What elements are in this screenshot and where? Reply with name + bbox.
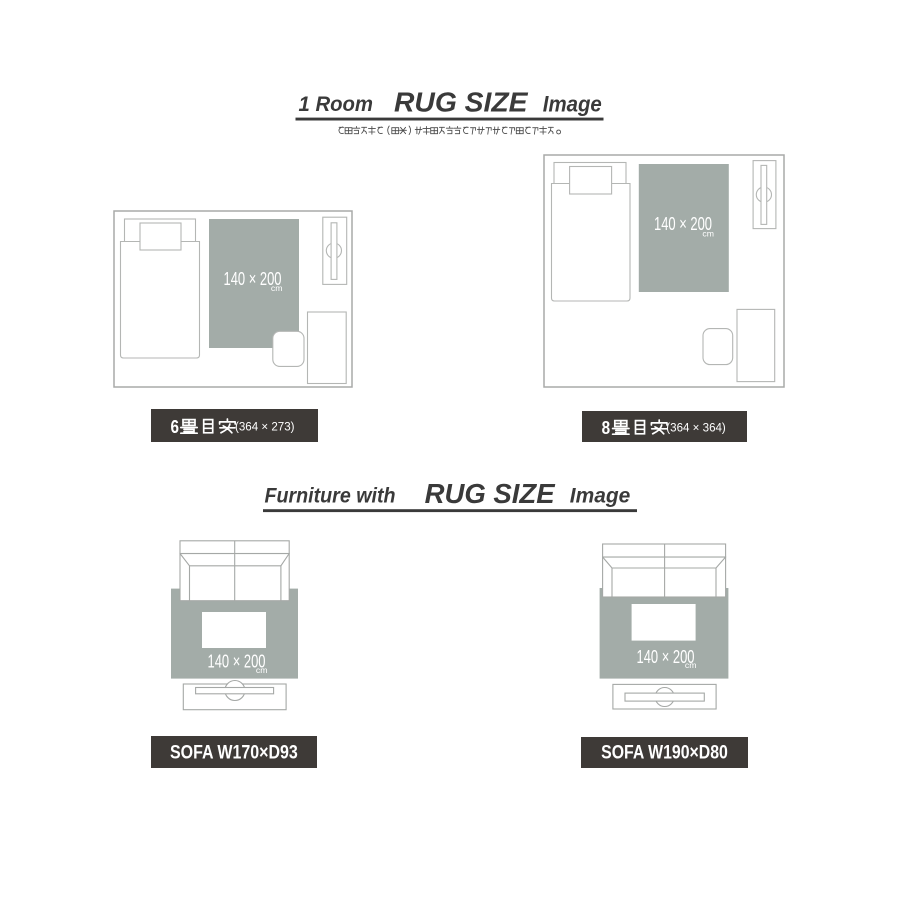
svg-text:Furniture with: Furniture with (265, 484, 396, 508)
svg-text:cm: cm (685, 660, 697, 670)
svg-text:cm: cm (702, 229, 714, 239)
svg-text:(364 × 273): (364 × 273) (235, 419, 295, 433)
svg-text:1 Room: 1 Room (299, 93, 374, 116)
svg-text:(364 × 364): (364 × 364) (666, 420, 726, 434)
svg-text:cm: cm (256, 665, 268, 675)
svg-text:cm: cm (271, 283, 283, 293)
svg-text:SOFA W170×D93: SOFA W170×D93 (170, 742, 298, 763)
svg-text:Image: Image (570, 484, 631, 508)
svg-text:8: 8 (602, 417, 611, 438)
svg-text:RUG SIZE: RUG SIZE (394, 87, 529, 118)
svg-text:6: 6 (170, 416, 179, 437)
svg-text:SOFA W190×D80: SOFA W190×D80 (601, 743, 728, 764)
svg-text:RUG SIZE: RUG SIZE (425, 478, 556, 509)
svg-text:Image: Image (543, 92, 602, 117)
